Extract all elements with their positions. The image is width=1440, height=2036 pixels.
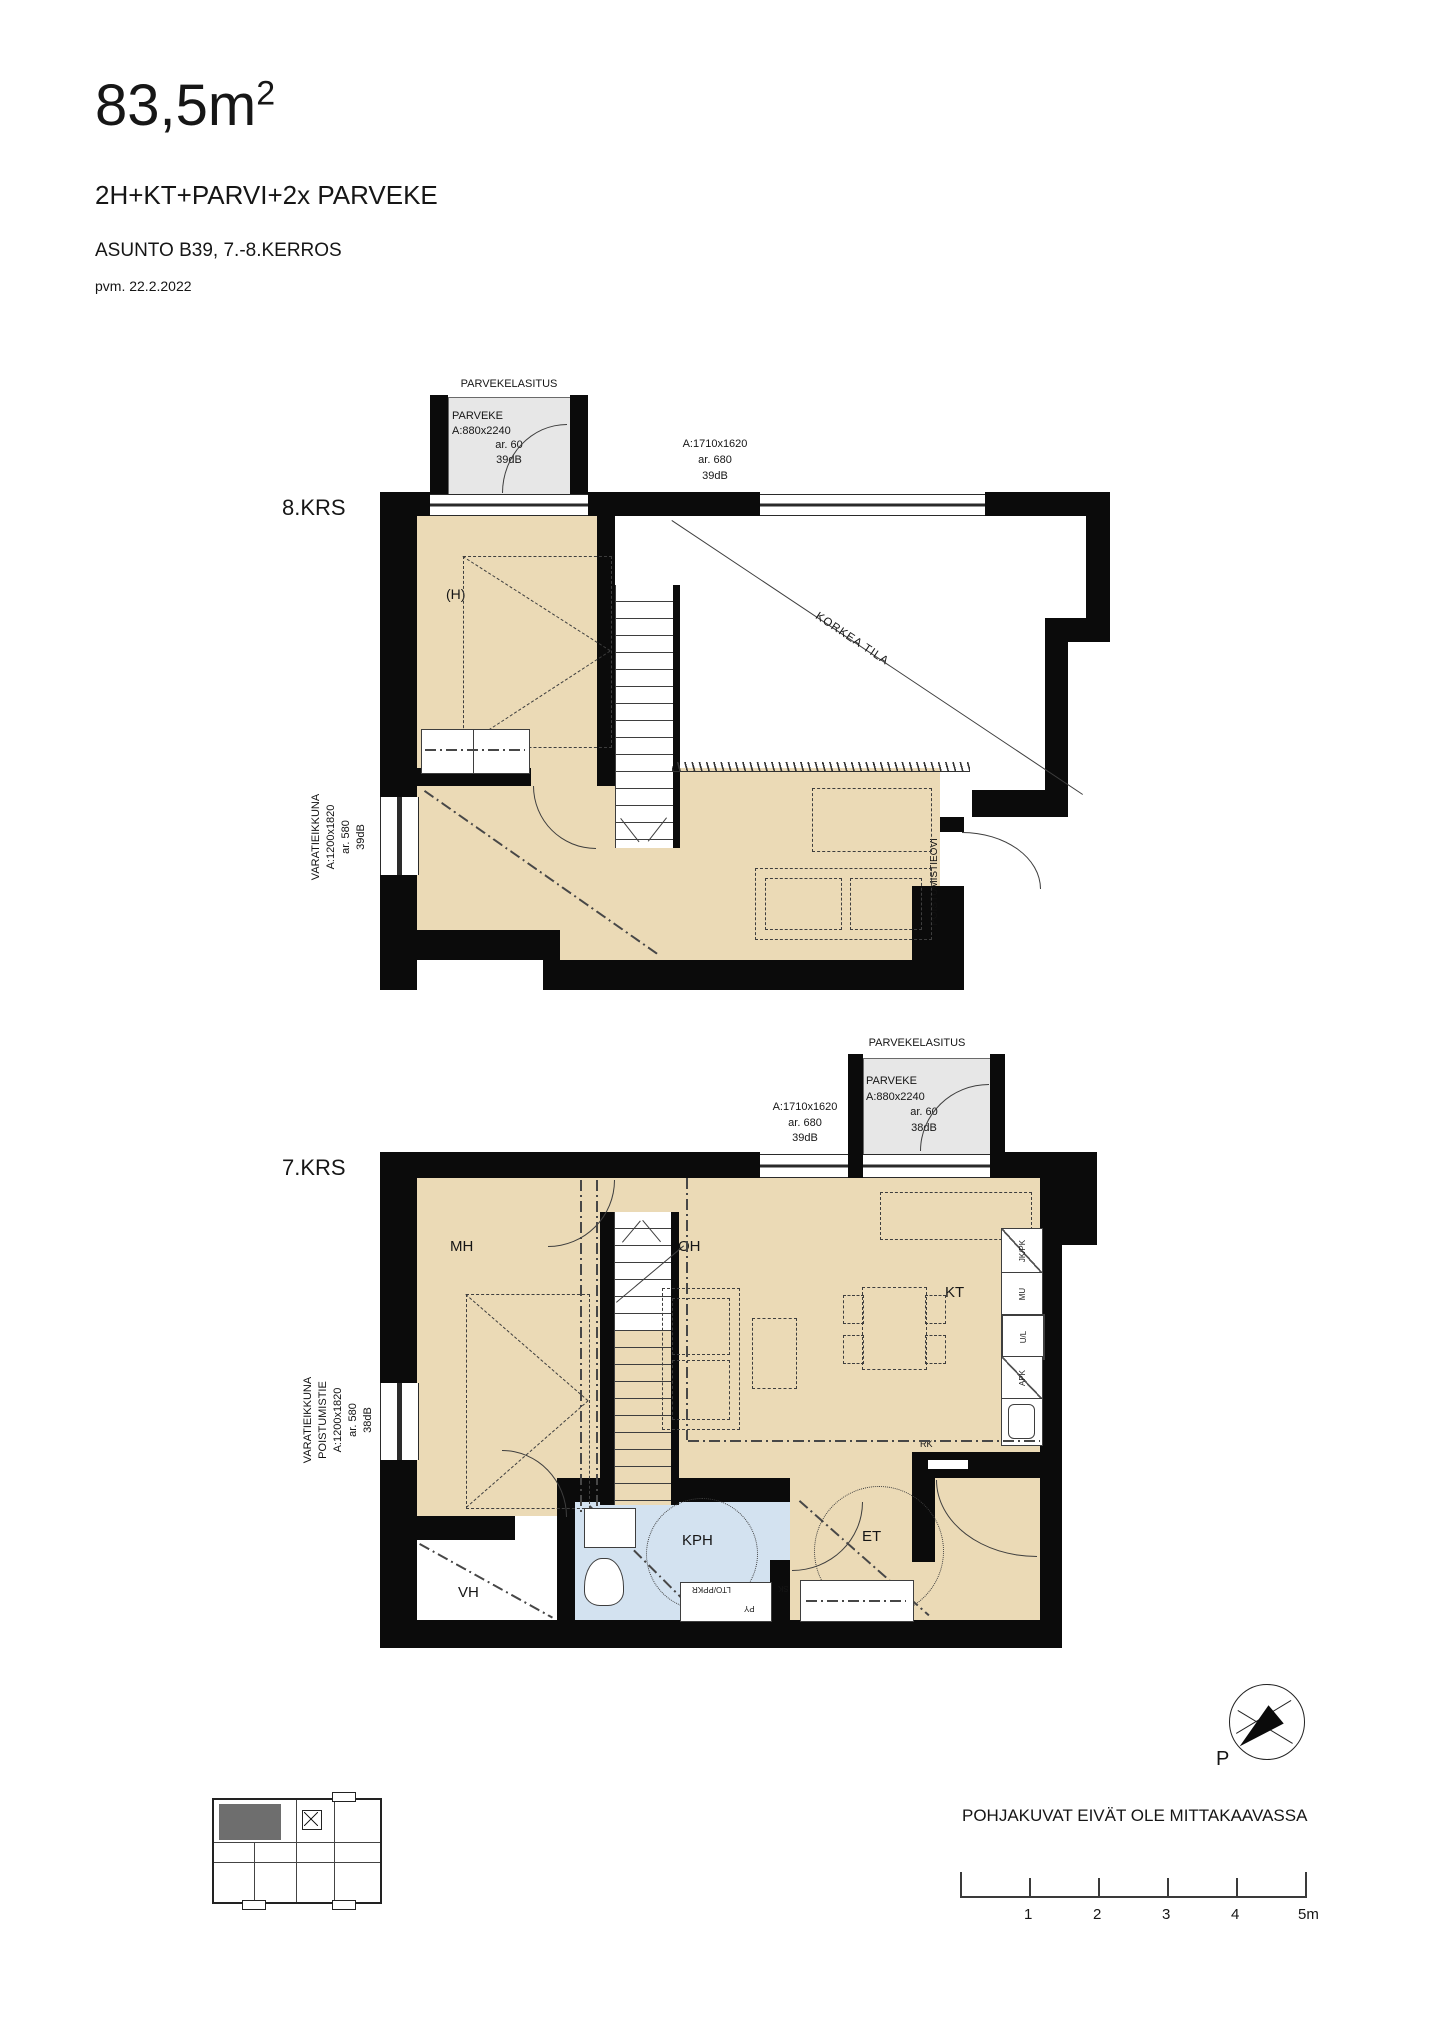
scale-tick: [1098, 1878, 1100, 1898]
closet-line: [596, 1180, 598, 1514]
sofa-seat: [672, 1360, 730, 1420]
balcony-name-8: PARVEKE: [452, 409, 566, 424]
escape-window-l1: VARATIEIKKUNA: [309, 762, 324, 912]
site-plan: [212, 1798, 382, 1904]
bed-7: [466, 1294, 590, 1509]
escape-window-l4: ar. 580: [346, 1345, 361, 1495]
wall: [1062, 1152, 1097, 1245]
area-value: 83,5m: [95, 73, 256, 138]
appliance-mu: MU: [1001, 1272, 1043, 1316]
wall: [600, 1212, 614, 1505]
site-plan-stair-mark: [304, 1812, 318, 1826]
closet-label-py: PY: [744, 1604, 755, 1613]
washbasin-icon: [584, 1508, 636, 1548]
window-info-top-7: A:1710x1620 ar. 680 39dB: [745, 1100, 865, 1147]
open-space-label: KORKEA TILA: [782, 590, 922, 689]
toilet-icon: [584, 1558, 624, 1606]
north-arrow-icon: [1229, 1684, 1305, 1760]
wall: [417, 1516, 515, 1540]
wardrobe-8: [421, 729, 475, 774]
floor-label-7krs: 7.KRS: [282, 1155, 346, 1181]
escape-window-l1: VARATIEIKKUNA: [301, 1345, 316, 1495]
escape-window-l2: POISTUMISTIE: [316, 1345, 331, 1495]
site-plan-tab: [332, 1900, 356, 1910]
window-db: 39dB: [745, 1131, 865, 1147]
rk-niche: [928, 1460, 968, 1469]
escape-window-8: [380, 797, 419, 875]
escape-window-l5: 38dB: [361, 1345, 376, 1495]
window-db: 39dB: [655, 468, 775, 484]
wall: [380, 1152, 417, 1383]
exit-door-arc-8: [962, 832, 1041, 889]
site-plan-line: [214, 1862, 380, 1863]
site-plan-line: [334, 1800, 335, 1902]
escape-window-l2: A:1200x1820: [324, 762, 339, 912]
appliance-dishwasher: APK: [1001, 1356, 1043, 1400]
hall-floor-8: [615, 848, 679, 930]
scale-label-2: 2: [1093, 1906, 1101, 1923]
appliance-fridge: JK/PK: [1001, 1228, 1043, 1274]
room-label-oh: OH: [678, 1238, 701, 1255]
closet-label-sk: SK: [778, 1584, 789, 1593]
escape-window-7: [380, 1383, 419, 1460]
wall: [972, 790, 1068, 817]
sink-basin-icon: [1008, 1404, 1035, 1439]
scale-label-5m: 5m: [1298, 1906, 1319, 1923]
disclaimer-text: POHJAKUVAT EIVÄT OLE MITTAKAAVASSA: [962, 1806, 1307, 1826]
escape-window-l3: ar. 580: [339, 762, 354, 912]
wall: [990, 1054, 1005, 1178]
sofa-seat: [672, 1298, 730, 1355]
window-dim: A:1710x1620: [745, 1100, 865, 1116]
wall: [380, 492, 417, 797]
loft-edge-line: [686, 1178, 688, 1440]
room-label-kt: KT: [945, 1284, 964, 1301]
scale-bar: 1 2 3 4 5m: [960, 1870, 1306, 1930]
plan-date: pvm. 22.2.2022: [95, 278, 192, 294]
site-plan-line: [254, 1842, 255, 1902]
sofa-seat: [765, 878, 842, 930]
appliance-label: APK: [1001, 1358, 1043, 1398]
chair: [843, 1295, 864, 1324]
window-top-8: [760, 494, 985, 516]
appliance-label: JK/PK: [1000, 1231, 1044, 1271]
dining-table-7: [862, 1287, 927, 1370]
wall: [940, 817, 964, 832]
wall: [588, 492, 760, 516]
scale-tick: [1236, 1878, 1238, 1898]
window-ar: ar. 680: [655, 452, 775, 468]
stairs-8: [615, 585, 680, 848]
escape-window-label-8: VARATIEIKKUNA A:1200x1820 ar. 580 39dB: [309, 762, 371, 912]
scale-tick: [1167, 1878, 1169, 1898]
scale-bar-line: [960, 1896, 1305, 1898]
sofa-seat: [850, 878, 922, 930]
site-plan-highlight-unit: [219, 1804, 281, 1840]
closet-label-lto: LTO/PPKR: [692, 1585, 731, 1594]
site-plan-tab: [242, 1900, 266, 1910]
page-title-area: 83,5m2: [95, 72, 275, 139]
wall: [543, 960, 964, 990]
chair: [925, 1295, 946, 1324]
escape-window-label-7: VARATIEIKKUNA POISTUMISTIE A:1200x1820 a…: [301, 1345, 379, 1495]
balcony-glazing-label-7: PARVEKELASITUS: [852, 1036, 982, 1051]
wall: [380, 1620, 1062, 1648]
window-top-7: [760, 1154, 848, 1178]
loft-railing-8: [672, 762, 970, 772]
room-label-mh: MH: [450, 1238, 473, 1255]
apartment-id: ASUNTO B39, 7.-8.KERROS: [95, 240, 342, 262]
floor-label-8krs: 8.KRS: [282, 495, 346, 521]
appliance-oven: U/L: [1001, 1314, 1045, 1360]
chair: [843, 1335, 864, 1364]
chair: [925, 1335, 946, 1364]
scale-label-1: 1: [1024, 1906, 1032, 1923]
escape-window-l3: A:1200x1820: [331, 1345, 346, 1495]
balcony-glazing-label-8: PARVEKELASITUS: [444, 377, 574, 392]
site-plan-line: [296, 1800, 297, 1902]
wall: [380, 1152, 760, 1178]
hall-floor-8b: [560, 930, 679, 960]
side-table-7: [752, 1318, 797, 1389]
wall: [380, 930, 560, 960]
wardrobe-8: [473, 729, 530, 774]
site-plan-tab: [332, 1792, 356, 1802]
wall: [1045, 618, 1110, 642]
wall: [557, 1502, 575, 1620]
apartment-layout: 2H+KT+PARVI+2x PARVEKE: [95, 180, 438, 211]
bed-8: [463, 556, 612, 748]
wall: [1040, 1152, 1062, 1452]
appliance-label: U/L: [1002, 1317, 1044, 1357]
scale-tick: [1029, 1878, 1031, 1898]
table-8: [812, 788, 932, 852]
loft-edge-line: [688, 1440, 1040, 1442]
window-dim: A:1710x1620: [655, 436, 775, 452]
window-ar: ar. 680: [745, 1116, 865, 1132]
site-plan-line: [214, 1842, 380, 1843]
window-info-top-8: A:1710x1620 ar. 680 39dB: [655, 436, 775, 484]
scale-tick: [1305, 1872, 1307, 1898]
wardrobe-centerline: [425, 749, 525, 751]
area-sup: 2: [256, 75, 275, 113]
scale-tick: [960, 1872, 962, 1898]
balcony-door-sill-7: [863, 1154, 990, 1178]
room-label-vh: VH: [458, 1584, 479, 1601]
north-label: P: [1216, 1748, 1229, 1771]
scale-label-3: 3: [1162, 1906, 1170, 1923]
scale-label-4: 4: [1231, 1906, 1239, 1923]
appliance-label: MU: [1001, 1274, 1043, 1314]
escape-window-l4: 39dB: [354, 762, 369, 912]
balcony-door-sill-8: [430, 494, 588, 516]
closet-centerline: [806, 1600, 906, 1602]
